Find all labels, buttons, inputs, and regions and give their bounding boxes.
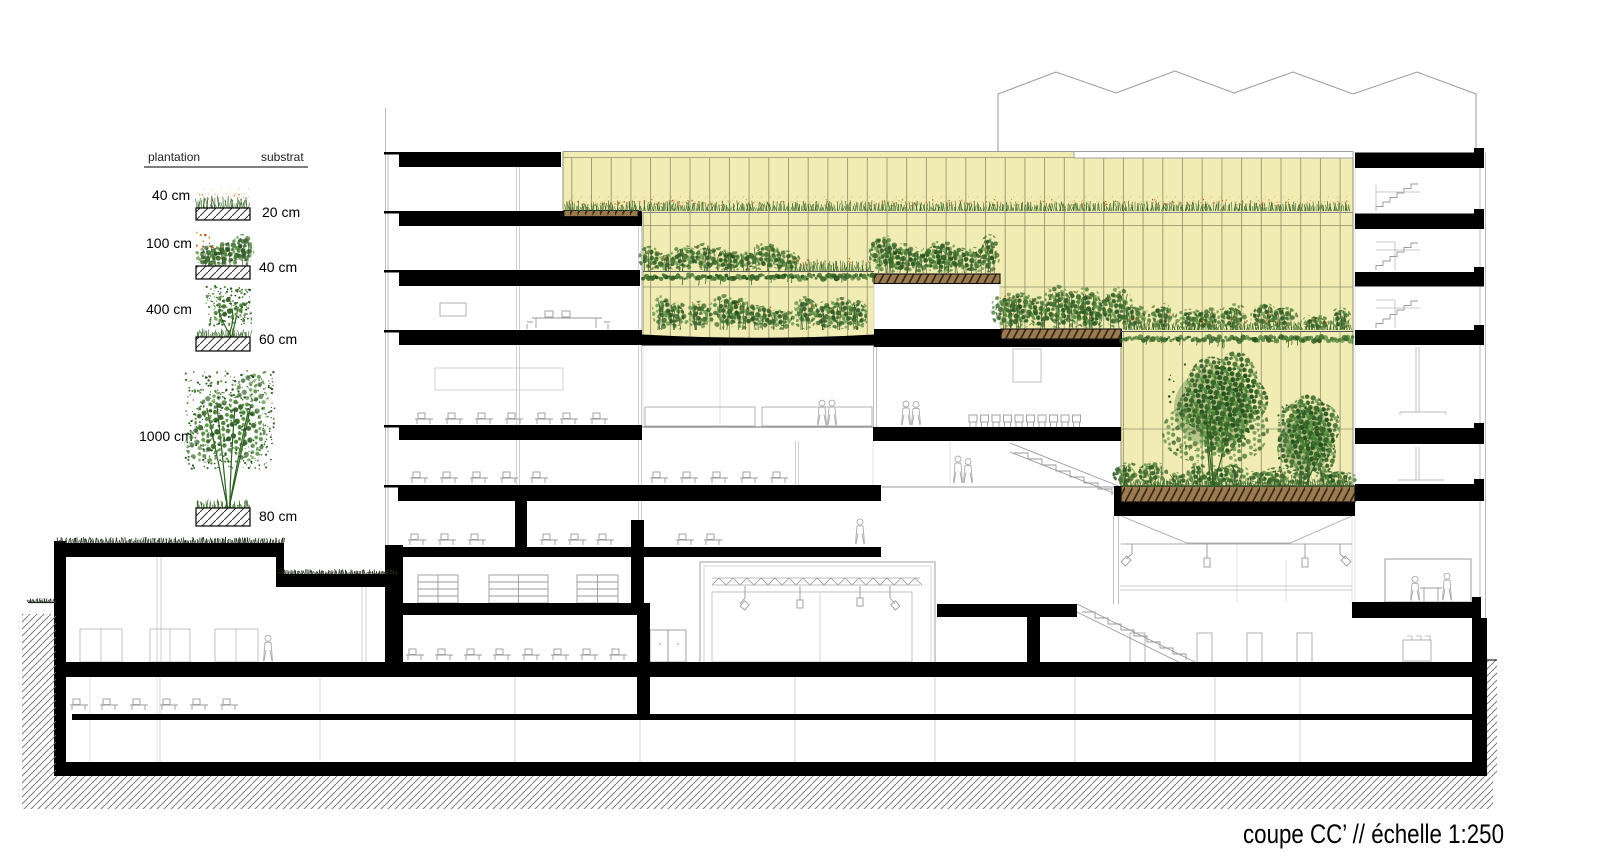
svg-text:40 cm: 40 cm [152, 187, 190, 203]
svg-text:20 cm: 20 cm [262, 204, 300, 220]
svg-text:40 cm: 40 cm [259, 259, 297, 275]
svg-text:100 cm: 100 cm [146, 235, 192, 251]
svg-text:400 cm: 400 cm [146, 301, 192, 317]
svg-text:substrat: substrat [261, 150, 304, 164]
svg-text:60 cm: 60 cm [259, 331, 297, 347]
svg-text:80 cm: 80 cm [259, 508, 297, 524]
svg-text:coupe CC’ // échelle 1:250: coupe CC’ // échelle 1:250 [1243, 819, 1504, 849]
svg-text:plantation: plantation [148, 150, 200, 164]
